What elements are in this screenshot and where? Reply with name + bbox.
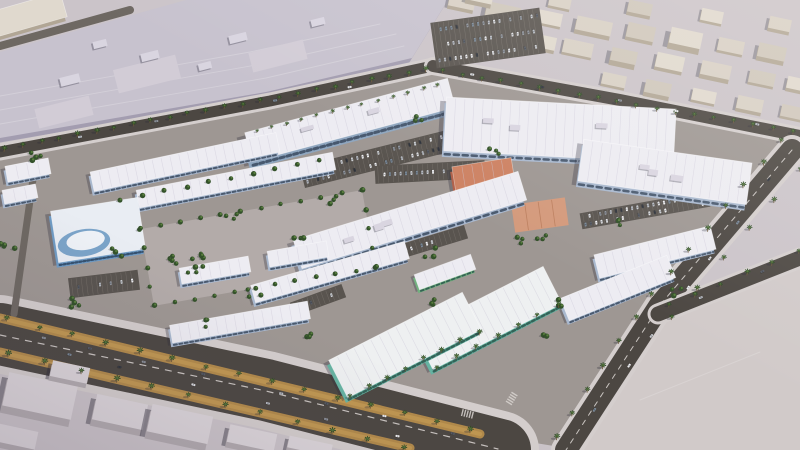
masterplan-3d-render [0, 0, 800, 450]
foreground-shade [0, 0, 800, 450]
aerial-masterplan-render [0, 0, 800, 450]
atmosphere-overlay [0, 0, 800, 450]
